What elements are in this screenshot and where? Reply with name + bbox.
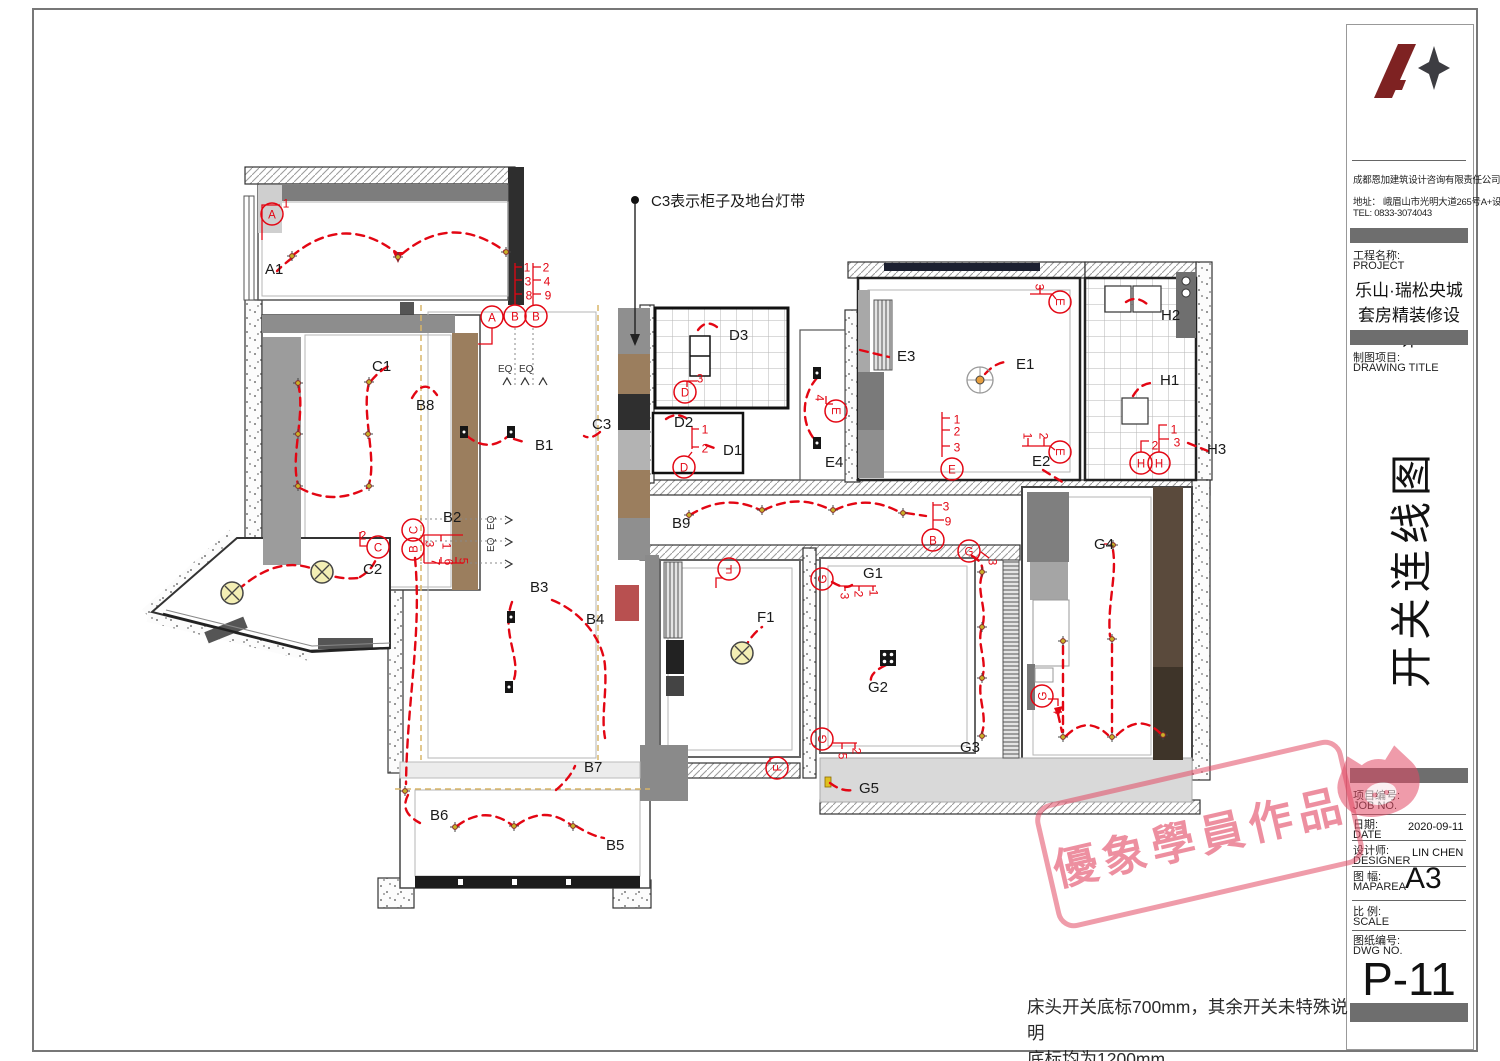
circuit-label: G2 — [868, 679, 888, 696]
company-logo — [1372, 40, 1450, 104]
switch-letter: G — [1037, 691, 1049, 700]
circuit-number: 3 — [943, 499, 950, 513]
circuit-label: B7 — [584, 759, 602, 776]
switch-letter: F — [725, 562, 732, 574]
circuit-label: F1 — [757, 609, 775, 626]
light-marker-icon — [977, 567, 987, 577]
circuit-label: EQ — [498, 364, 513, 375]
wall-light-icon — [505, 681, 513, 693]
circuit-number: 3 — [697, 371, 704, 385]
cabinet-lightstrip-annotation: C3表示柜子及地台灯带 — [651, 193, 805, 210]
lamp-icon — [221, 582, 243, 604]
switch-letter: A — [268, 209, 276, 221]
switch-letter: E — [948, 464, 956, 476]
divider — [1352, 930, 1466, 931]
lamp-icon — [731, 642, 753, 664]
switch-letter: G — [817, 574, 829, 583]
circuit-number: 4 — [813, 395, 827, 402]
switch-letter: E — [829, 407, 841, 415]
circuit-number: 1 — [1021, 433, 1035, 440]
circuit-number: 2 — [954, 424, 961, 438]
light-marker-icon — [977, 622, 987, 632]
switch-letter: E — [1053, 448, 1065, 456]
circuit-label: B3 — [530, 579, 548, 596]
circuit-label: B1 — [535, 437, 553, 454]
light-marker-icon — [828, 505, 838, 515]
company-address: 地址： 峨眉山市光明大道265号A+设计 — [1353, 194, 1467, 208]
switch-circle: A — [481, 306, 503, 328]
circuit-number: 4 — [544, 274, 551, 288]
circuit-number: 1 — [283, 196, 290, 210]
circuit-number: 1 — [702, 422, 709, 436]
section-bar — [1350, 1003, 1468, 1022]
circuit-number: 2 — [702, 441, 709, 455]
switch-letter: B — [929, 535, 937, 547]
switch-circle: B — [504, 305, 526, 327]
circuit-number: 2 — [1152, 438, 1159, 452]
circuit-number: 5 — [457, 558, 471, 565]
switch-letter: D — [681, 387, 689, 399]
circuit-number: 5 — [836, 753, 850, 760]
circuit-label: G3 — [960, 739, 980, 756]
lamp-icon — [311, 561, 333, 583]
circuit-number: 3 — [423, 541, 437, 548]
date-value: 2020-09-11 — [1408, 821, 1463, 833]
switch-letter: A — [488, 312, 496, 324]
divider — [1352, 900, 1466, 901]
circuit-number: 7 — [429, 559, 443, 566]
circuit-number: 2 — [360, 528, 367, 542]
wall-light-icon — [813, 437, 821, 449]
switch-letter: F — [772, 764, 784, 771]
circuit-number: 2 — [850, 748, 864, 755]
drawing-title-vertical: 开关连线图 — [1382, 418, 1442, 718]
switch-letter: H — [1155, 458, 1163, 470]
maparea-label-en: MAPAREA — [1353, 881, 1406, 893]
circuit-number: 8 — [526, 288, 533, 302]
switch-letter: B — [532, 311, 540, 323]
circuit-number: 2 — [543, 260, 550, 274]
light-marker-icon — [757, 505, 767, 515]
logo-plus-icon — [1418, 46, 1450, 90]
general-note: 床头开关底标700mm，其余开关未特殊说明 底标均为1200mm — [1027, 994, 1357, 1061]
project-label-en: PROJECT — [1353, 260, 1404, 272]
circuit-number: 9 — [545, 288, 552, 302]
switch-letter: E — [1053, 298, 1065, 306]
switch-letter: B — [408, 545, 420, 553]
circuit-label: D1 — [723, 442, 742, 459]
circuit-label: B9 — [672, 515, 690, 532]
circuit-label: D2 — [674, 414, 693, 431]
circuit-number: 1 — [440, 543, 454, 550]
designer-value: LIN CHEN — [1412, 847, 1463, 859]
switch-letter: H — [1137, 458, 1145, 470]
section-bar — [1350, 228, 1468, 243]
circuit-label: B8 — [416, 397, 434, 414]
circuit-label: D3 — [729, 327, 748, 344]
downlight-group-icon — [880, 650, 896, 666]
circuit-label: G5 — [859, 780, 879, 797]
circuit-number: 2 — [1037, 433, 1051, 440]
dwgno-value: P-11 — [1350, 952, 1468, 1006]
ceiling-light-icon — [967, 367, 993, 393]
circuit-label: EQ — [486, 537, 497, 552]
divider — [1352, 160, 1466, 161]
circuit-label: C2 — [363, 561, 382, 578]
circuit-label: EQ — [519, 364, 534, 375]
divider — [1352, 840, 1466, 841]
wall-light-icon — [460, 426, 468, 438]
light-marker-icon — [898, 508, 908, 518]
circuit-number: 3 — [525, 274, 532, 288]
circuit-label: E2 — [1032, 453, 1050, 470]
drawing-sheet: AABBCCBDDEEEEFFGGGGHHB 12348912312123312… — [0, 0, 1500, 1061]
drawing-label-en: DRAWING TITLE — [1353, 362, 1439, 374]
scale-label-en: SCALE — [1353, 916, 1389, 928]
circuit-number: 1 — [1171, 422, 1178, 436]
circuit-number: 3 — [1174, 435, 1181, 449]
circuit-number: 3 — [838, 593, 852, 600]
circuit-label: G1 — [863, 565, 883, 582]
circuit-label: A1 — [265, 261, 283, 278]
light-marker-icon — [977, 673, 987, 683]
switch-letter: G — [817, 734, 829, 743]
switch-letter: C — [408, 526, 420, 534]
circuit-label: G4 — [1094, 536, 1114, 553]
circuit-label: B6 — [430, 807, 448, 824]
circuit-label: E4 — [825, 454, 843, 471]
circuit-label: H2 — [1161, 307, 1180, 324]
circuit-label: B5 — [606, 837, 624, 854]
circuit-number: 4 — [1051, 708, 1065, 715]
wall-light-icon — [813, 367, 821, 379]
circuit-label: H1 — [1160, 372, 1179, 389]
switch-circle: B — [525, 305, 547, 327]
circuit-number: 9 — [945, 514, 952, 528]
circuit-number: 2 — [852, 591, 866, 598]
switch-letter: C — [374, 542, 382, 554]
wall-light-icon — [507, 611, 515, 623]
circuit-number: 6 — [442, 559, 456, 566]
circuit-number: 1 — [524, 260, 531, 274]
switch-letter: G — [965, 546, 974, 558]
section-bar — [1350, 330, 1468, 345]
circuit-label: E3 — [897, 348, 915, 365]
maparea-value: A3 — [1405, 862, 1442, 896]
circuit-label: C3 — [592, 416, 611, 433]
company-name: 成都恩加建筑设计咨询有限责任公司 — [1353, 172, 1467, 186]
company-tel: TEL: 0833-3074043 — [1353, 208, 1467, 219]
circuit-label: B2 — [443, 509, 461, 526]
circuit-label: EQ — [486, 515, 497, 530]
circuit-number: 3 — [1033, 284, 1047, 291]
circuit-number: 3 — [954, 440, 961, 454]
circuit-number: 3 — [986, 559, 1000, 566]
circuit-label: H3 — [1207, 441, 1226, 458]
circuit-number: 1 — [867, 590, 881, 597]
circuit-label: E1 — [1016, 356, 1034, 373]
switch-letter: D — [680, 462, 688, 474]
circuit-label: B4 — [586, 611, 604, 628]
wall-light-icon — [507, 426, 515, 438]
circuit-label: C1 — [372, 358, 391, 375]
switch-letter: B — [511, 311, 519, 323]
